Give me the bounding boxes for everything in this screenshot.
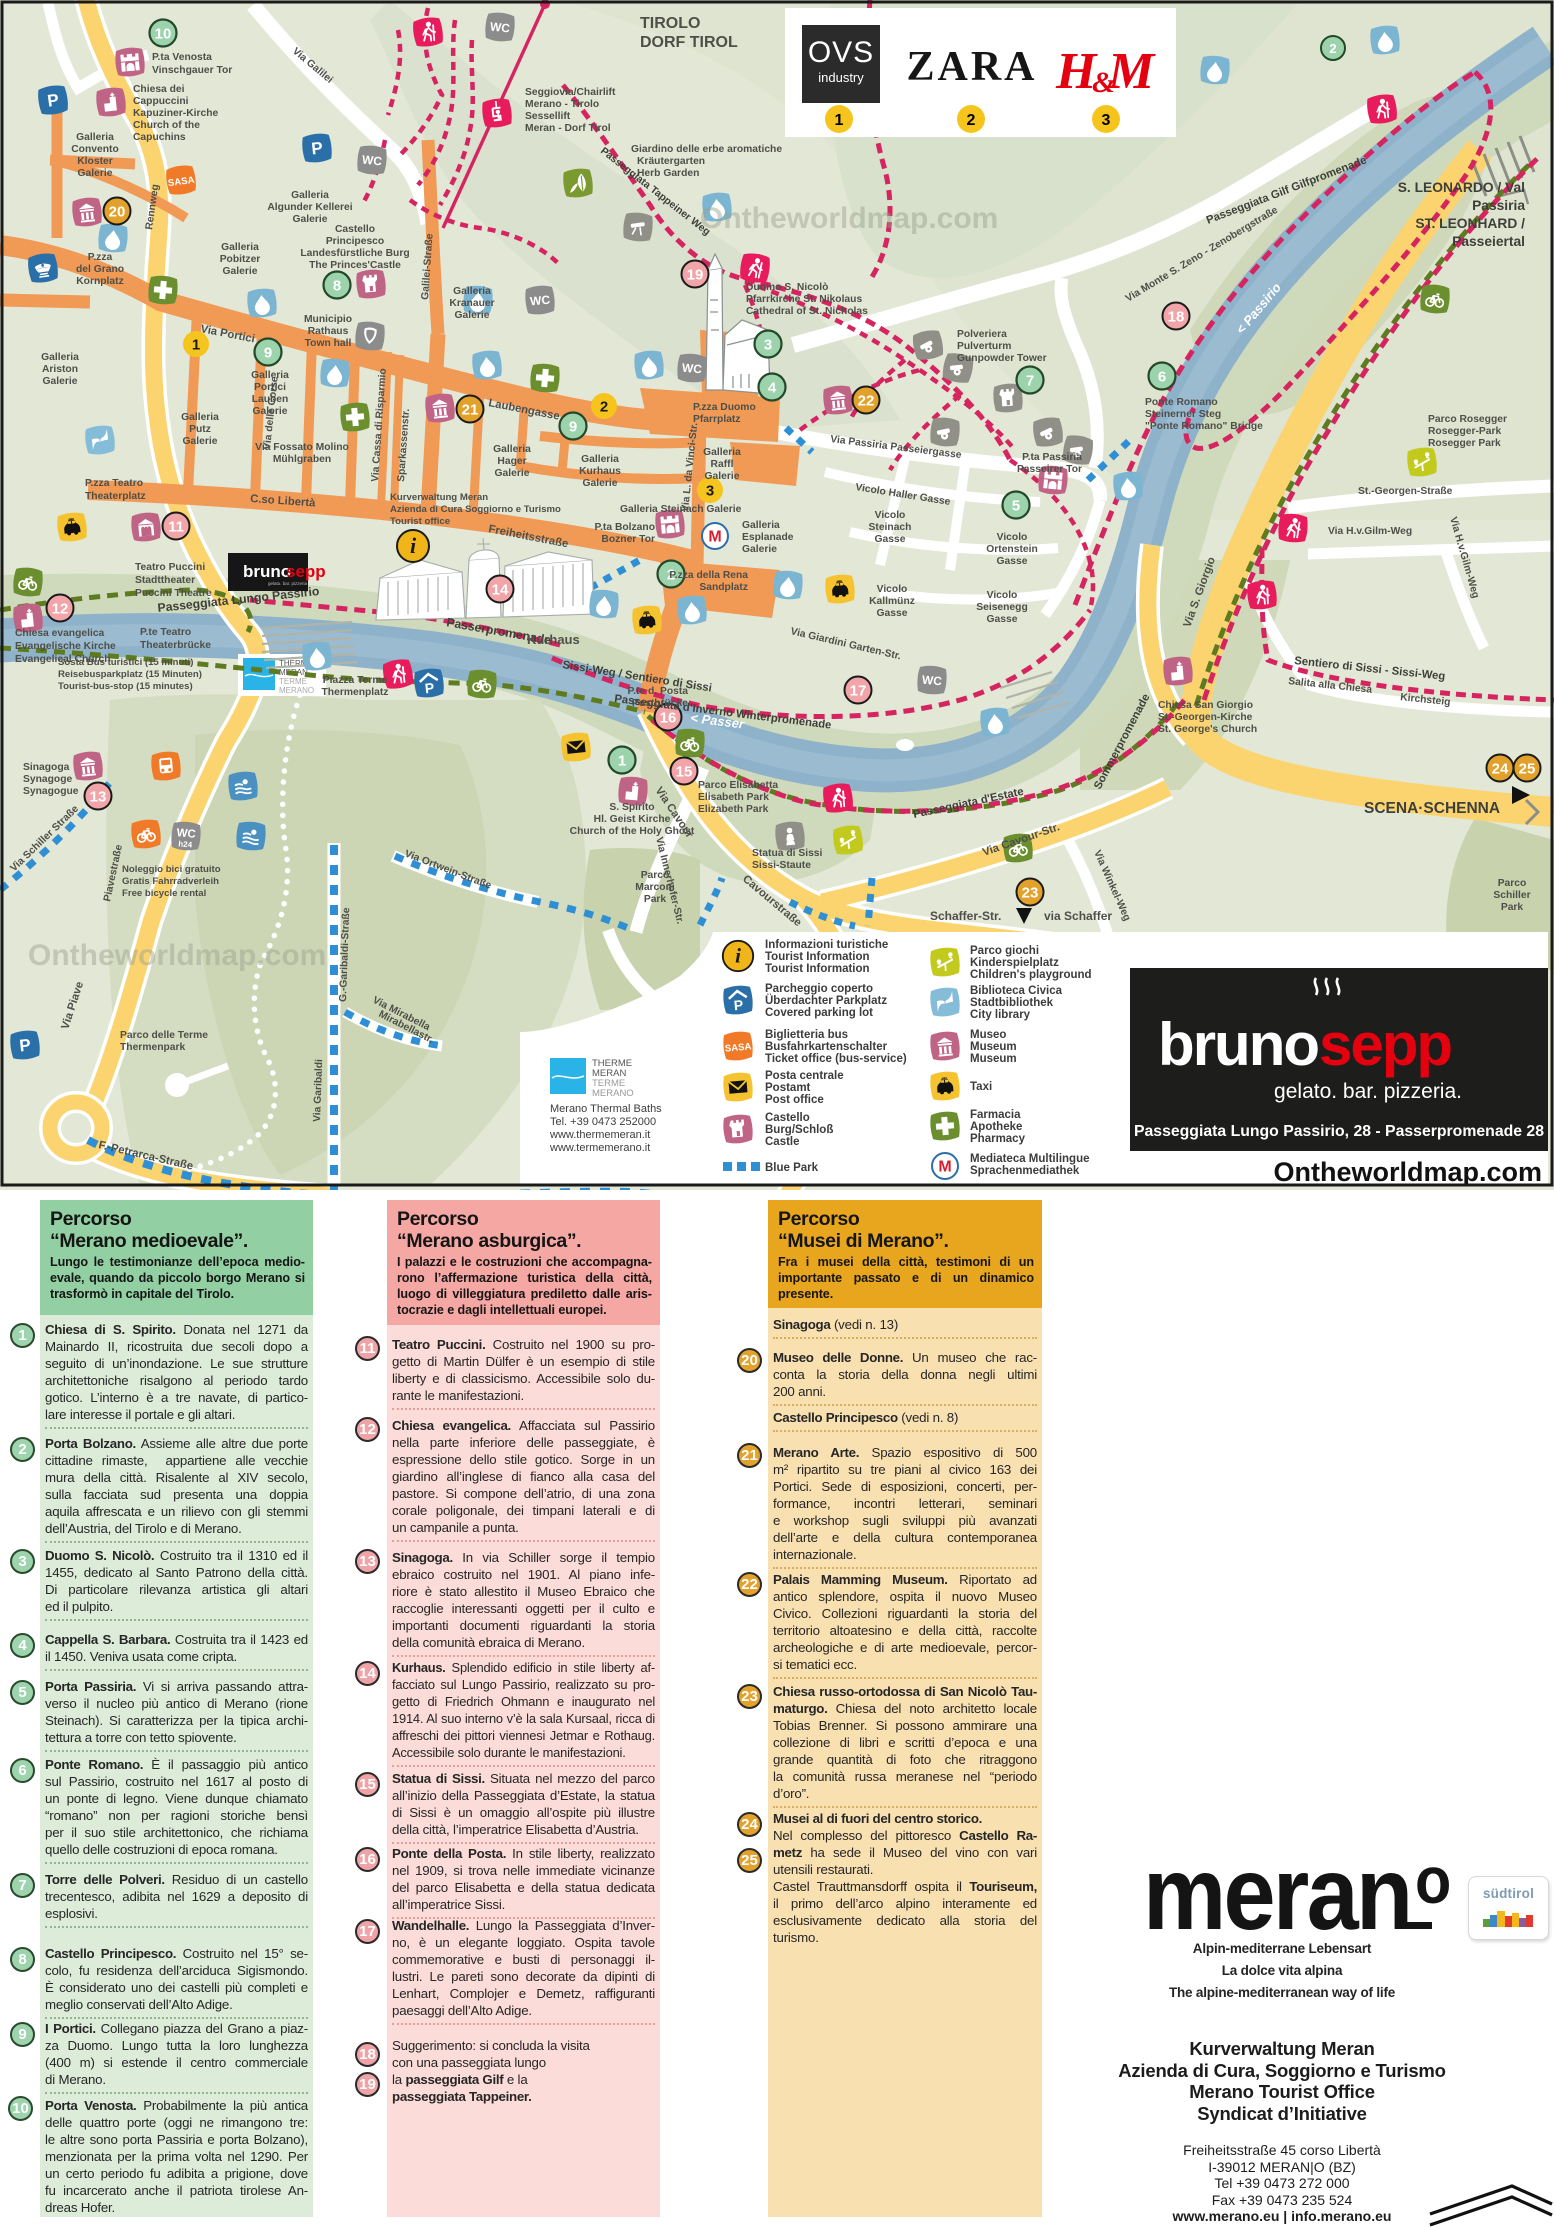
- svg-text:Galerie: Galerie: [705, 471, 740, 482]
- svg-text:OVS: OVS: [808, 36, 874, 69]
- svg-text:Galleria: Galleria: [76, 132, 114, 143]
- svg-text:Elisabeth Park: Elisabeth Park: [698, 792, 769, 803]
- svg-text:Steinerner Steg: Steinerner Steg: [1145, 409, 1221, 420]
- svg-text:25: 25: [1519, 761, 1536, 778]
- svg-text:Parco delle Terme: Parco delle Terme: [120, 1030, 208, 1041]
- svg-text:Kurverwaltung Meran: Kurverwaltung Meran: [390, 492, 488, 503]
- svg-text:Ortenstein: Ortenstein: [986, 544, 1038, 555]
- svg-text:bruno: bruno: [243, 562, 291, 581]
- svg-text:Passiria: Passiria: [1472, 198, 1525, 213]
- svg-text:Galleria: Galleria: [221, 242, 259, 253]
- svg-text:Sessellift: Sessellift: [525, 111, 571, 122]
- svg-text:Galleria: Galleria: [493, 444, 531, 455]
- svg-text:Via Fossato Molino: Via Fossato Molino: [255, 442, 349, 453]
- svg-text:7: 7: [1026, 373, 1034, 390]
- svg-text:Ariston: Ariston: [42, 364, 78, 375]
- svg-text:23: 23: [1022, 885, 1039, 902]
- svg-text:Hl. Geist Kirche: Hl. Geist Kirche: [594, 814, 671, 825]
- svg-text:Biblioteca Civica: Biblioteca Civica: [970, 985, 1063, 997]
- svg-text:Posta centrale: Posta centrale: [765, 1070, 844, 1082]
- svg-text:Busfahrkartenschalter: Busfahrkartenschalter: [765, 1041, 888, 1053]
- svg-text:9: 9: [569, 419, 577, 436]
- svg-text:Museum: Museum: [970, 1053, 1017, 1065]
- svg-text:Covered parking lot: Covered parking lot: [765, 1007, 873, 1019]
- svg-text:www.termemerano.it: www.termemerano.it: [549, 1142, 650, 1154]
- svg-text:Apotheke: Apotheke: [970, 1121, 1022, 1133]
- svg-text:Park: Park: [644, 894, 667, 905]
- svg-text:City library: City library: [970, 1009, 1031, 1021]
- svg-text:Gasse: Gasse: [987, 614, 1018, 625]
- svg-text:P.te d. Posta: P.te d. Posta: [628, 686, 689, 697]
- svg-text:Galerie: Galerie: [78, 168, 113, 179]
- svg-text:Stadttheater: Stadttheater: [135, 575, 195, 586]
- svg-text:Esplanade: Esplanade: [742, 532, 794, 543]
- svg-text:Vicolo: Vicolo: [875, 510, 906, 521]
- svg-text:Blue Park: Blue Park: [765, 1162, 819, 1174]
- svg-text:24: 24: [1492, 761, 1509, 778]
- svg-text:Gratis Fahrradverleih: Gratis Fahrradverleih: [122, 876, 219, 887]
- svg-text:Evangelische Kirche: Evangelische Kirche: [15, 641, 116, 652]
- svg-text:P.zza Teatro: P.zza Teatro: [85, 478, 143, 489]
- svg-text:P.zza Duomo: P.zza Duomo: [693, 402, 756, 413]
- svg-text:Azienda di Cura Soggiorno e Tu: Azienda di Cura Soggiorno e Turismo: [390, 504, 561, 515]
- svg-text:Bozner Tor: Bozner Tor: [601, 534, 655, 545]
- svg-text:Steinach: Steinach: [869, 522, 912, 533]
- svg-text:Sinagoga: Sinagoga: [23, 762, 70, 773]
- svg-text:Galerie: Galerie: [183, 436, 218, 447]
- svg-text:Elizabeth Park: Elizabeth Park: [698, 804, 769, 815]
- svg-text:Galerie: Galerie: [293, 214, 328, 225]
- svg-text:Galleria: Galleria: [291, 190, 329, 201]
- svg-text:P.zza della Rena: P.zza della Rena: [669, 570, 748, 581]
- svg-text:Rosegger Park: Rosegger Park: [1428, 438, 1501, 449]
- svg-text:Galerie: Galerie: [495, 468, 530, 479]
- svg-text:Ticket office (bus-service): Ticket office (bus-service): [765, 1053, 907, 1065]
- svg-text:Parco Elisabetta: Parco Elisabetta: [698, 780, 778, 791]
- svg-text:Galleria: Galleria: [251, 370, 289, 381]
- svg-text:Castle: Castle: [765, 1136, 800, 1148]
- svg-text:Sprachenmediathek: Sprachenmediathek: [970, 1165, 1080, 1177]
- svg-text:19: 19: [687, 267, 704, 284]
- svg-text:Vicolo: Vicolo: [997, 532, 1028, 543]
- svg-text:Pobitzer: Pobitzer: [220, 254, 261, 265]
- svg-text:3: 3: [764, 337, 772, 354]
- svg-text:Noleggio bici gratuito: Noleggio bici gratuito: [122, 864, 221, 875]
- svg-text:Putz: Putz: [189, 424, 211, 435]
- svg-text:Gasse: Gasse: [875, 534, 906, 545]
- svg-text:Kräutergarten: Kräutergarten: [637, 156, 705, 167]
- svg-text:Hager: Hager: [497, 456, 526, 467]
- svg-text:P.ta Passiria: P.ta Passiria: [1022, 452, 1082, 463]
- svg-text:Sosta Bus turistici (15 minuti: Sosta Bus turistici (15 minuti): [58, 657, 193, 668]
- svg-text:Passeirer Tor: Passeirer Tor: [1017, 464, 1082, 475]
- svg-text:del Grano: del Grano: [76, 264, 124, 275]
- svg-text:Seggiovia/Chairlift: Seggiovia/Chairlift: [525, 87, 616, 98]
- svg-text:Convento: Convento: [71, 144, 118, 155]
- svg-text:Postbrücke: Postbrücke: [632, 698, 688, 709]
- svg-text:Church of the Holy Ghost: Church of the Holy Ghost: [570, 826, 695, 837]
- svg-text:www.thermemeran.it: www.thermemeran.it: [549, 1129, 650, 1141]
- svg-text:Galerie: Galerie: [253, 406, 288, 417]
- svg-text:Schiller: Schiller: [1493, 890, 1530, 901]
- svg-text:Children's playground: Children's playground: [970, 969, 1092, 981]
- svg-text:SCENA·SCHENNA: SCENA·SCHENNA: [1364, 800, 1500, 817]
- svg-text:3: 3: [1102, 112, 1111, 129]
- svg-text:Chiesa San Giorgio: Chiesa San Giorgio: [1158, 700, 1253, 711]
- svg-text:Algunder Kellerei: Algunder Kellerei: [267, 202, 352, 213]
- svg-text:Municipio: Municipio: [304, 314, 352, 325]
- svg-text:Merano Thermal Baths: Merano Thermal Baths: [550, 1103, 662, 1115]
- svg-text:Tourist Information: Tourist Information: [765, 951, 870, 963]
- svg-text:industry: industry: [818, 70, 864, 85]
- svg-text:Capuchins: Capuchins: [133, 132, 186, 143]
- svg-text:Chiesa dei: Chiesa dei: [133, 84, 185, 95]
- svg-text:21: 21: [462, 402, 479, 419]
- svg-text:St. George's Church: St. George's Church: [1158, 724, 1257, 735]
- svg-text:Stadtbibliothek: Stadtbibliothek: [970, 997, 1054, 1009]
- svg-text:St.-Georgen-Straße: St.-Georgen-Straße: [1358, 486, 1453, 497]
- svg-text:Merano - Tirolo: Merano - Tirolo: [525, 99, 599, 110]
- svg-text:Parco giochi: Parco giochi: [970, 945, 1039, 957]
- svg-text:10: 10: [155, 26, 172, 43]
- svg-text:Piazza Terme: Piazza Terme: [323, 675, 388, 686]
- svg-text:MERANO: MERANO: [279, 686, 314, 695]
- svg-text:Biglietteria bus: Biglietteria bus: [765, 1029, 848, 1041]
- svg-text:Galerie: Galerie: [742, 544, 777, 555]
- svg-text:Tourist office: Tourist office: [390, 516, 450, 527]
- svg-text:Theaterplatz: Theaterplatz: [85, 491, 146, 502]
- svg-text:Ponte Romano: Ponte Romano: [1145, 397, 1218, 408]
- svg-text:P.ta Venosta: P.ta Venosta: [152, 52, 212, 63]
- svg-text:Pfarrkirche St. Nikolaus: Pfarrkirche St. Nikolaus: [746, 294, 862, 305]
- svg-text:2: 2: [967, 112, 976, 129]
- svg-text:Pharmacy: Pharmacy: [970, 1133, 1026, 1145]
- svg-text:S. Spirito: S. Spirito: [609, 802, 654, 813]
- svg-text:Ontheworldmap.com: Ontheworldmap.com: [700, 202, 998, 235]
- svg-text:via Schaffer: via Schaffer: [1044, 909, 1112, 923]
- svg-text:TIROLO: TIROLO: [640, 15, 700, 32]
- svg-text:Chiesa evangelica: Chiesa evangelica: [15, 628, 105, 639]
- svg-text:Rosegger-Park: Rosegger-Park: [1428, 426, 1502, 437]
- svg-text:Kallmünz: Kallmünz: [869, 596, 915, 607]
- svg-text:Kranauer: Kranauer: [449, 298, 494, 309]
- svg-text:Schaffer-Str.: Schaffer-Str.: [930, 909, 1001, 923]
- svg-text:Portici: Portici: [254, 382, 286, 393]
- svg-text:Polveriera: Polveriera: [957, 329, 1007, 340]
- svg-text:Free bicycle rental: Free bicycle rental: [122, 888, 206, 899]
- svg-text:Mühlgraben: Mühlgraben: [273, 454, 331, 465]
- svg-text:P.zza: P.zza: [88, 252, 113, 263]
- svg-text:Galleria: Galleria: [581, 454, 619, 465]
- svg-text:Galleria: Galleria: [703, 447, 741, 458]
- svg-text:6: 6: [1158, 369, 1166, 386]
- svg-text:gelato. bar. pizzeria.: gelato. bar. pizzeria.: [1274, 1080, 1462, 1103]
- svg-text:Pulverturm: Pulverturm: [957, 341, 1011, 352]
- svg-text:Statua di Sissi: Statua di Sissi: [752, 848, 823, 859]
- svg-text:5: 5: [1012, 498, 1020, 515]
- svg-text:Landesfürstliche Burg: Landesfürstliche Burg: [300, 248, 409, 259]
- svg-text:Museum: Museum: [970, 1041, 1017, 1053]
- svg-text:ZARA: ZARA: [906, 44, 1037, 90]
- svg-text:Vinschgauer Tor: Vinschgauer Tor: [152, 65, 232, 76]
- svg-text:20: 20: [109, 204, 126, 221]
- svg-text:Galerie: Galerie: [43, 376, 78, 387]
- svg-text:Teatro Puccini: Teatro Puccini: [135, 562, 205, 573]
- svg-text:Via H.v.Gilm-Weg: Via H.v.Gilm-Weg: [1328, 526, 1412, 537]
- svg-text:Synagogue: Synagogue: [23, 786, 79, 797]
- svg-text:Meran - Dorf Tirol: Meran - Dorf Tirol: [525, 123, 611, 134]
- svg-text:2: 2: [600, 399, 608, 416]
- svg-text:Kornplatz: Kornplatz: [76, 276, 123, 287]
- svg-text:Taxi: Taxi: [970, 1081, 992, 1093]
- svg-text:Galerie: Galerie: [223, 266, 258, 277]
- svg-text:Galerie: Galerie: [583, 478, 618, 489]
- svg-text:Sandplatz: Sandplatz: [699, 582, 748, 593]
- svg-text:Kinderspielplatz: Kinderspielplatz: [970, 957, 1059, 969]
- svg-text:8: 8: [333, 278, 341, 295]
- svg-text:Vicolo: Vicolo: [877, 584, 908, 595]
- svg-text:Castello: Castello: [765, 1112, 810, 1124]
- svg-text:Ontheworldmap.com: Ontheworldmap.com: [28, 939, 326, 972]
- svg-text:Galleria: Galleria: [41, 352, 79, 363]
- svg-text:TERME: TERME: [279, 677, 307, 686]
- svg-text:DORF TIROL: DORF TIROL: [640, 34, 738, 51]
- svg-text:12: 12: [52, 601, 69, 618]
- svg-text:4: 4: [768, 380, 777, 397]
- svg-text:Via Garibaldi: Via Garibaldi: [312, 1059, 325, 1122]
- svg-text:sepp: sepp: [286, 562, 326, 581]
- svg-text:h24: h24: [178, 839, 193, 849]
- svg-text:Vicolo: Vicolo: [987, 590, 1018, 601]
- svg-text:Kurhaus: Kurhaus: [579, 466, 621, 477]
- svg-text:11: 11: [168, 519, 184, 536]
- svg-text:Tourist Information: Tourist Information: [765, 963, 870, 975]
- svg-text:Giardino delle erbe aromatiche: Giardino delle erbe aromatiche: [631, 144, 782, 155]
- svg-text:Seisenegg: Seisenegg: [976, 602, 1028, 613]
- svg-text:Tel. +39 0473 252000: Tel. +39 0473 252000: [550, 1116, 656, 1128]
- svg-text:Passeiertal: Passeiertal: [1452, 234, 1525, 249]
- svg-text:Thermenplatz: Thermenplatz: [322, 687, 389, 698]
- svg-text:P.te Teatro: P.te Teatro: [140, 627, 191, 638]
- svg-text:Galerie: Galerie: [455, 310, 490, 321]
- svg-text:P.ta Bolzano: P.ta Bolzano: [595, 522, 655, 533]
- svg-text:Gunpowder Tower: Gunpowder Tower: [957, 353, 1047, 364]
- svg-text:Rathaus: Rathaus: [308, 326, 349, 337]
- svg-text:13: 13: [90, 789, 107, 806]
- svg-text:Ontheworldmap.com: Ontheworldmap.com: [1273, 1157, 1542, 1187]
- svg-text:1: 1: [835, 112, 844, 129]
- svg-text:Parco Rosegger: Parco Rosegger: [1428, 414, 1507, 425]
- svg-text:3: 3: [706, 483, 714, 500]
- svg-text:17: 17: [850, 683, 867, 700]
- svg-text:Tourist-bus-stop (15 minutes): Tourist-bus-stop (15 minutes): [58, 681, 193, 692]
- svg-text:15: 15: [676, 764, 693, 781]
- svg-text:Thermenpark: Thermenpark: [120, 1042, 186, 1053]
- svg-text:18: 18: [1168, 309, 1185, 326]
- svg-text:Cathedral of St. Nicholas: Cathedral of St. Nicholas: [746, 306, 868, 317]
- svg-text:Kloster: Kloster: [77, 156, 112, 167]
- svg-text:Parcheggio coperto: Parcheggio coperto: [765, 983, 873, 995]
- svg-text:Farmacia: Farmacia: [970, 1109, 1021, 1121]
- svg-text:Town hall: Town hall: [305, 338, 352, 349]
- svg-text:Cappuccini: Cappuccini: [133, 96, 189, 107]
- svg-text:M: M: [1107, 43, 1156, 100]
- svg-text:Galleria: Galleria: [742, 520, 780, 531]
- svg-text:MERANO: MERANO: [592, 1088, 634, 1099]
- svg-text:The Princes'Castle: The Princes'Castle: [309, 260, 401, 271]
- svg-text:Principesco: Principesco: [326, 236, 384, 247]
- svg-text:Raffl: Raffl: [711, 459, 734, 470]
- svg-text:St.-Georgen-Kirche: St.-Georgen-Kirche: [1158, 712, 1253, 723]
- svg-text:Gasse: Gasse: [877, 608, 908, 619]
- svg-text:sepp: sepp: [1319, 1011, 1451, 1078]
- svg-text:Theaterbrücke: Theaterbrücke: [140, 640, 211, 651]
- svg-text:Lauben: Lauben: [252, 394, 289, 405]
- svg-text:Kapuziner-Kirche: Kapuziner-Kirche: [133, 108, 219, 119]
- svg-text:Castello: Castello: [335, 224, 375, 235]
- svg-text:Synagoge: Synagoge: [23, 774, 72, 785]
- svg-text:Museo: Museo: [970, 1029, 1006, 1041]
- svg-text:Überdachter Parkplatz: Überdachter Parkplatz: [765, 994, 887, 1007]
- svg-text:9: 9: [264, 345, 272, 362]
- svg-text:Park: Park: [1501, 902, 1524, 913]
- svg-text:bruno: bruno: [1158, 1011, 1318, 1078]
- svg-text:Post office: Post office: [765, 1094, 824, 1106]
- svg-text:gelato. bar. pizzeria: gelato. bar. pizzeria: [268, 581, 308, 586]
- svg-text:S. LEONARDO / Val: S. LEONARDO / Val: [1398, 180, 1525, 195]
- svg-text:Parco: Parco: [1498, 878, 1527, 889]
- svg-text:Kurhaus: Kurhaus: [527, 632, 580, 647]
- svg-text:22: 22: [858, 393, 875, 410]
- svg-text:1: 1: [618, 753, 626, 770]
- svg-text:"Ponte Romano" Bridge: "Ponte Romano" Bridge: [1145, 421, 1263, 432]
- svg-text:Reisebusparkplatz (15 Minuten): Reisebusparkplatz (15 Minuten): [58, 669, 202, 680]
- svg-text:Duomo S. Nicolò: Duomo S. Nicolò: [746, 282, 828, 293]
- svg-text:Burg/Schloß: Burg/Schloß: [765, 1124, 833, 1136]
- svg-text:Gasse: Gasse: [997, 556, 1028, 567]
- svg-text:Postamt: Postamt: [765, 1082, 811, 1094]
- svg-text:ST. LEONHARD /: ST. LEONHARD /: [1415, 216, 1525, 231]
- svg-text:Informazioni turistiche: Informazioni turistiche: [765, 939, 888, 951]
- svg-text:Galleria: Galleria: [181, 412, 219, 423]
- svg-text:1: 1: [192, 337, 200, 354]
- svg-text:Galleria: Galleria: [453, 286, 491, 297]
- svg-text:Passeggiata Lungo Passirio, 28: Passeggiata Lungo Passirio, 28 - Passerp…: [1134, 1123, 1544, 1140]
- svg-text:14: 14: [492, 582, 509, 599]
- svg-text:Church of the: Church of the: [133, 120, 200, 131]
- svg-text:Mediateca Multilingue: Mediateca Multilingue: [970, 1153, 1090, 1165]
- svg-text:Sissi-Staute: Sissi-Staute: [752, 860, 811, 871]
- svg-text:2: 2: [1329, 41, 1336, 56]
